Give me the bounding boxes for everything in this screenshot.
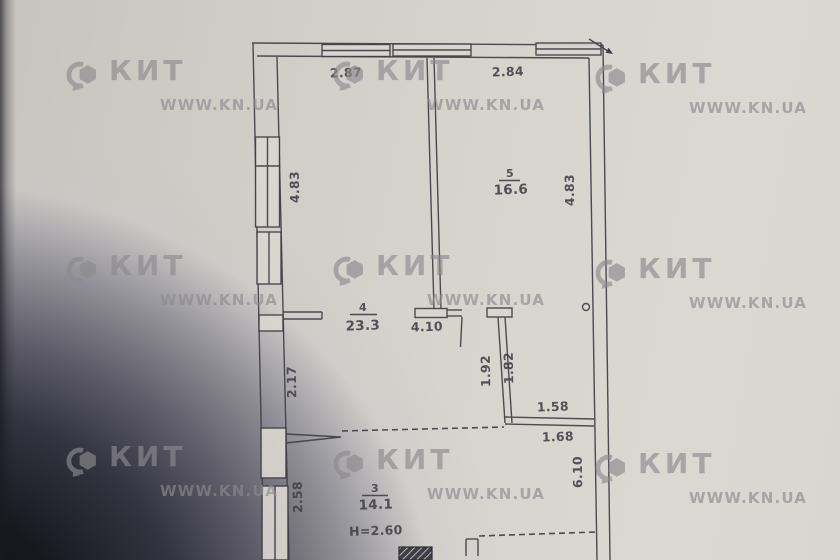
room-5-area: 16.6 [493,181,528,198]
dim-left-mid: 2.17 [284,366,300,398]
dim-niche-lower: 1.68 [542,428,575,444]
room-5-number: 5 [506,167,514,180]
dimension-labels: 2.87 2.84 4.83 4.83 2.17 2.58 4.10 1.92 … [284,63,586,513]
floor-plan-drawing: 2.87 2.84 4.83 4.83 2.17 2.58 4.10 1.92 … [0,0,840,560]
wall-pier-left [261,428,286,478]
dim-left-lower: 2.58 [290,481,306,513]
wall-junction-block [259,315,283,331]
floor-plan-photo: 2.87 2.84 4.83 4.83 2.17 2.58 4.10 1.92 … [0,0,840,560]
dim-top-left: 2.87 [330,64,363,80]
dim-right-upper: 4.83 [562,174,578,206]
dim-right-lower: 6.10 [570,456,586,488]
dim-niche-upper: 1.58 [537,398,570,414]
dim-corridor-outer: 1.92 [478,355,494,387]
exterior-walls [252,43,610,560]
room-4-area: 23.3 [345,317,380,334]
room-3-number: 3 [371,482,379,495]
riser-symbol [583,304,590,311]
dim-top-right: 2.84 [492,63,525,79]
dim-hall-width: 4.10 [411,318,444,334]
interior-walls [283,58,594,443]
vent-shaft-symbol [399,547,432,560]
dim-left-upper: 4.83 [287,171,303,203]
ceiling-height-label: Н=2.60 [349,522,403,539]
room-3-area: 14.1 [358,496,393,513]
door-leaf [461,317,463,347]
dim-corridor-inner: 1.82 [501,352,517,384]
room-4-number: 4 [359,301,367,314]
